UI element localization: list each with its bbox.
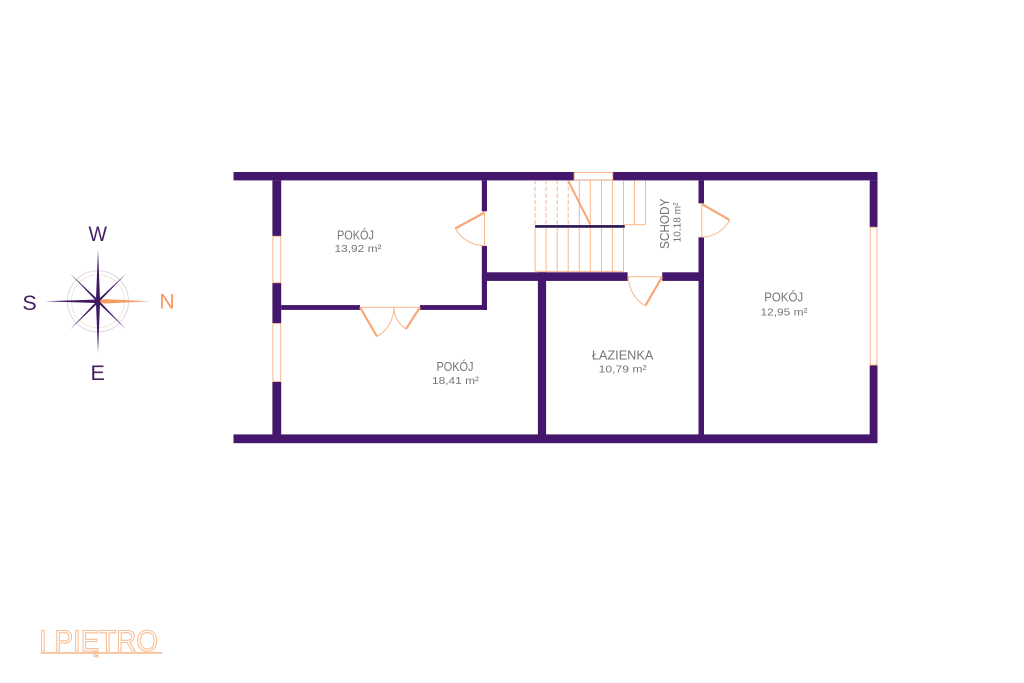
svg-text:W: W <box>89 222 108 246</box>
svg-text:N: N <box>159 289 175 313</box>
svg-text:13,92 m²: 13,92 m² <box>335 243 383 255</box>
svg-text:S: S <box>22 291 36 315</box>
svg-text:POKÓJ: POKÓJ <box>764 290 803 305</box>
svg-text:SCHODY: SCHODY <box>657 198 672 249</box>
svg-text:POKÓJ: POKÓJ <box>337 227 374 242</box>
svg-text:10,79 m²: 10,79 m² <box>599 363 648 375</box>
svg-text:ŁAZIENKA: ŁAZIENKA <box>592 348 654 363</box>
svg-text:10,18 m²: 10,18 m² <box>671 202 683 242</box>
svg-text:18,41 m²: 18,41 m² <box>432 375 480 387</box>
svg-text:12,95 m²: 12,95 m² <box>761 307 809 319</box>
svg-text:E: E <box>91 361 105 385</box>
svg-text:POKÓJ: POKÓJ <box>437 359 474 374</box>
